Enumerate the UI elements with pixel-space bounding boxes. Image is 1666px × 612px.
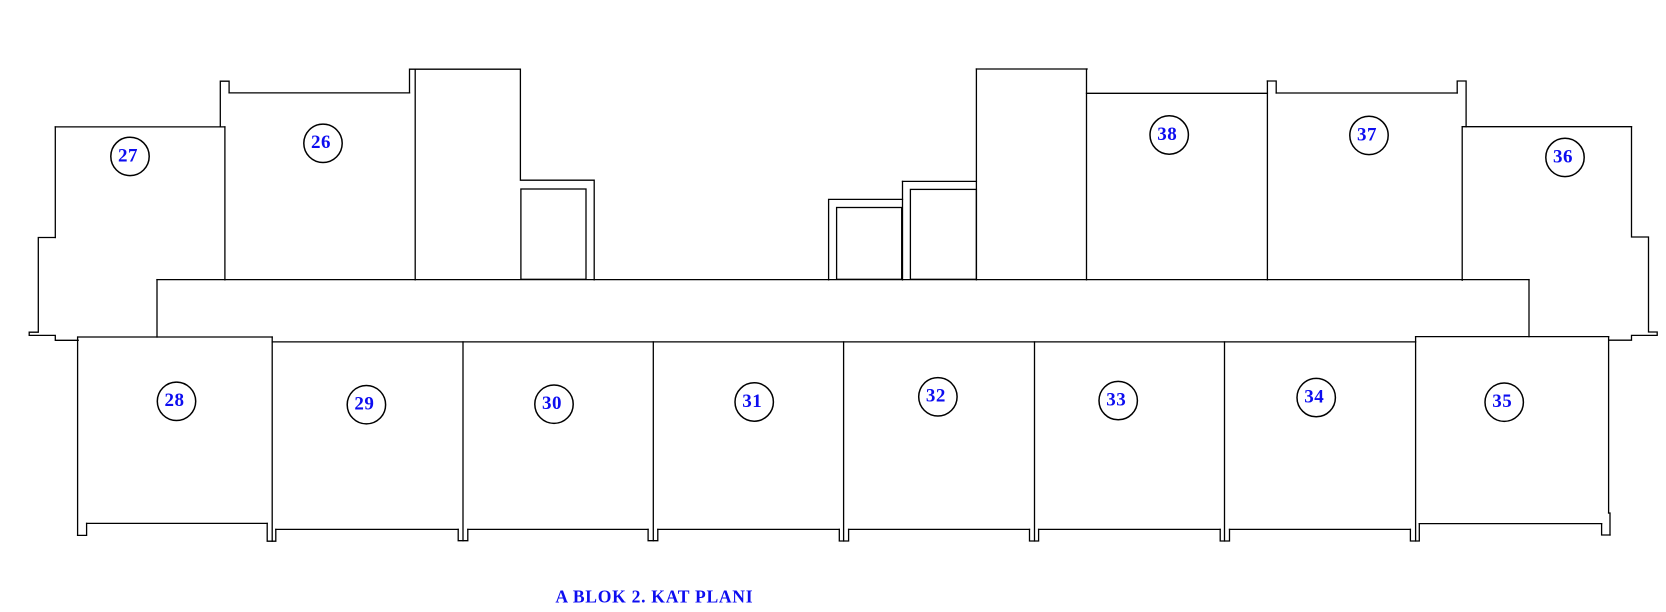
svg-text:31: 31 (742, 391, 762, 412)
svg-text:28: 28 (165, 390, 185, 411)
svg-text:32: 32 (926, 386, 946, 407)
svg-text:35: 35 (1492, 391, 1512, 412)
svg-text:34: 34 (1304, 387, 1324, 408)
svg-text:30: 30 (542, 393, 562, 414)
svg-text:37: 37 (1357, 124, 1377, 145)
svg-text:33: 33 (1106, 390, 1126, 411)
svg-text:36: 36 (1553, 146, 1573, 167)
svg-text:A BLOK 2. KAT PLANI: A BLOK 2. KAT PLANI (555, 586, 753, 606)
svg-text:27: 27 (118, 145, 138, 166)
svg-text:26: 26 (311, 132, 331, 153)
svg-text:29: 29 (354, 394, 374, 415)
svg-text:38: 38 (1157, 124, 1177, 145)
